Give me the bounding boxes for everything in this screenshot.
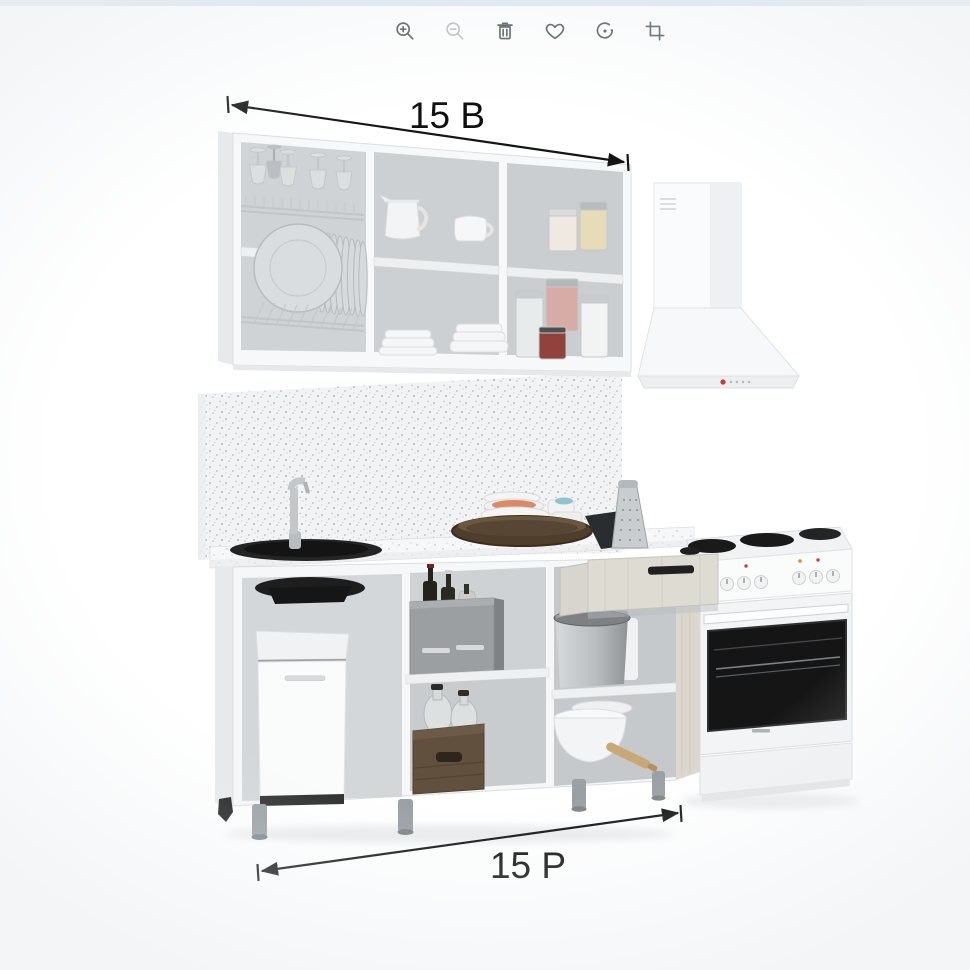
drawer-handle	[648, 565, 694, 575]
waste-bin	[256, 631, 349, 806]
image-viewer: 15 B 15 P	[0, 0, 970, 970]
hood-power-light	[720, 379, 725, 384]
range-hood	[638, 183, 799, 388]
brand-logo	[752, 729, 770, 733]
oven-door	[700, 593, 852, 755]
dimension-depth: 15 P	[258, 805, 682, 886]
wall-cabinet	[218, 131, 631, 377]
sink	[230, 539, 382, 561]
gray-crate	[410, 598, 504, 678]
product-image: 15 B 15 P	[0, 0, 970, 970]
depth-label: 15 P	[490, 845, 566, 886]
wooden-crate	[413, 724, 484, 794]
open-drawer	[560, 554, 718, 619]
width-label: 15 B	[409, 95, 485, 136]
